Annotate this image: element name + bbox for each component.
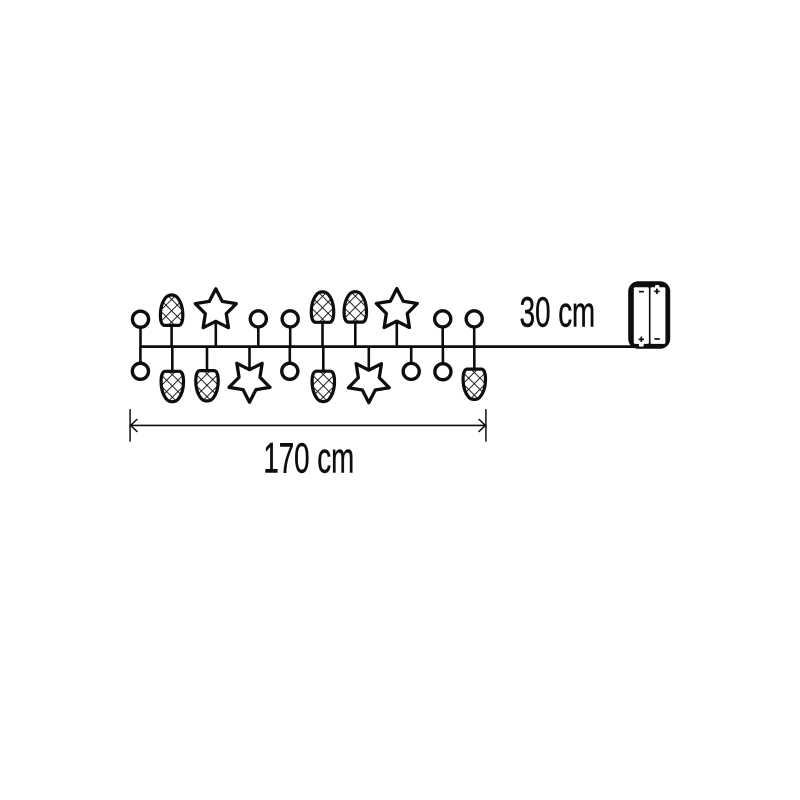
svg-text:170 cm: 170 cm	[263, 433, 354, 482]
svg-text:30 cm: 30 cm	[520, 287, 596, 336]
